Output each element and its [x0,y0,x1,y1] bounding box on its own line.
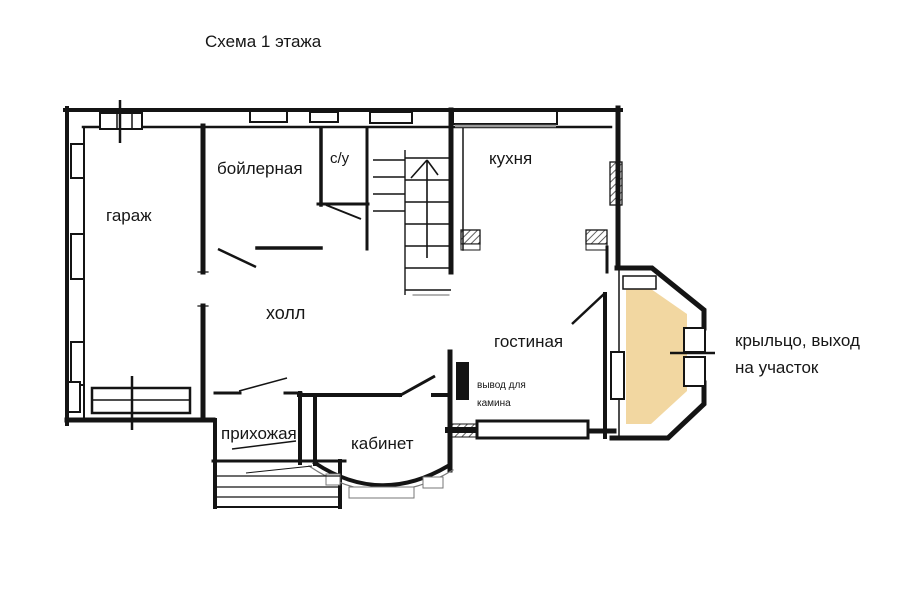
room-label-living: гостиная [494,332,563,351]
porch-door-panel-top [684,328,705,352]
porch-note-line1: крыльцо, выход [735,331,860,350]
window-garage-1 [71,144,84,178]
gate-bottom-pier [68,382,80,412]
window-top-3 [370,112,412,123]
window-garage-2 [71,234,84,279]
room-label-office: кабинет [351,434,414,453]
kitchen-pier-right-sill [586,244,607,250]
kitchen-pier-right [586,230,607,244]
window-kitchen-top [453,111,557,124]
window-top-2 [310,112,338,122]
kitchen-pier-left [461,230,480,244]
page-title: Схема 1 этажа [205,32,322,51]
room-label-kitchen: кухня [489,149,532,168]
kitchen-pier-left-sill [461,244,480,250]
bow-sill-right [423,477,443,488]
room-label-boiler: бойлерная [217,159,303,178]
window-garage-3 [71,342,84,385]
room-label-garage: гараж [106,206,152,225]
porch-door-panel-bottom [684,357,705,386]
bow-sill-center [349,487,414,498]
porch-note-line2: на участок [735,358,819,377]
room-label-hall: холл [266,303,305,323]
fireplace-note-line2: камина [477,398,511,409]
floor-plan-page: Схема 1 этажа гараж бойлерная с/у кухня … [0,0,900,589]
floor-plan-svg: Схема 1 этажа гараж бойлерная с/у кухня … [0,0,900,589]
window-living-bottom [477,421,588,438]
background [0,0,900,589]
room-label-bathroom: с/у [330,150,350,167]
room-label-entry: прихожая [221,424,297,443]
door-living-porch [611,352,624,399]
fireplace-outlet [456,362,469,400]
window-porch-top [623,276,656,289]
window-top-1 [250,111,287,122]
fireplace-note-line1: вывод для [477,380,526,391]
